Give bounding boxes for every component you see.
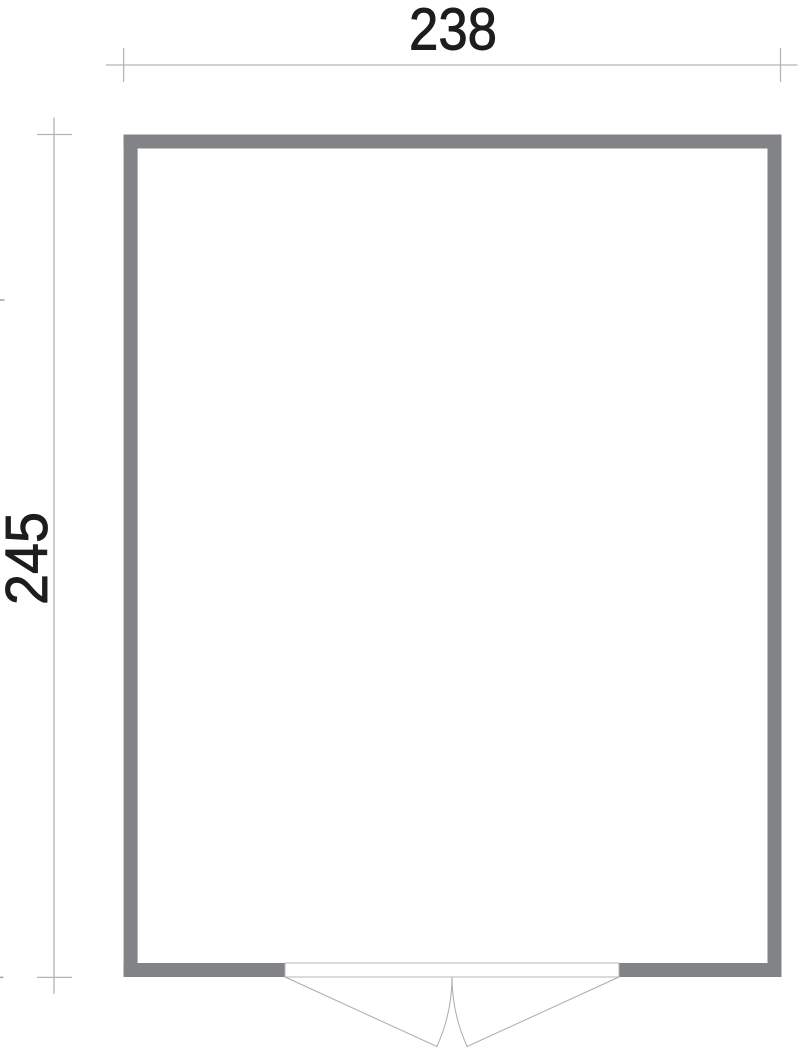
- svg-text:245: 245: [0, 512, 60, 605]
- svg-text:238: 238: [409, 0, 497, 63]
